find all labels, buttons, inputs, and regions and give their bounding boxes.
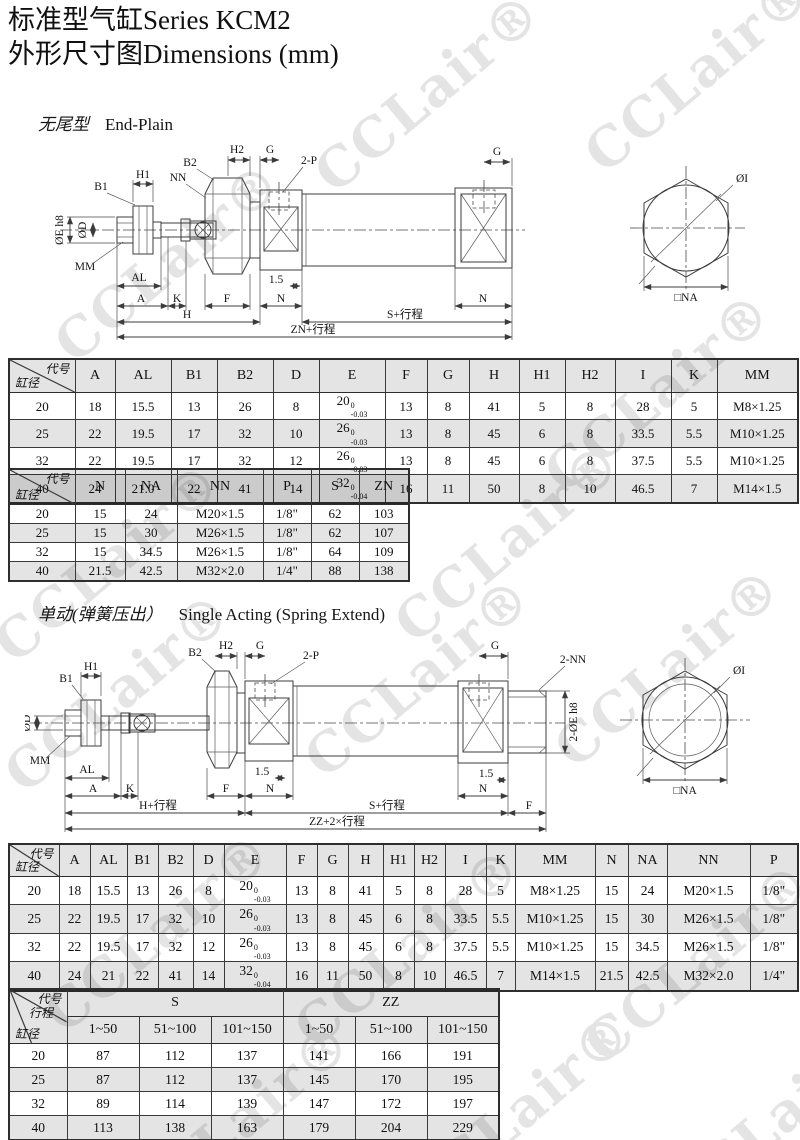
dim-label-f-right: F <box>526 800 532 812</box>
value-cell: 64 <box>311 543 359 562</box>
value-cell: 34.5 <box>628 933 667 961</box>
stroke-range-header: 1~50 <box>67 1017 139 1044</box>
section-heading-en: Single Acting (Spring Extend) <box>179 605 385 624</box>
value-cell: 10 <box>193 905 224 933</box>
value-cell: 32 <box>158 933 193 961</box>
dim-label-b2: B2 <box>183 157 197 169</box>
tolerance-base: 26 <box>239 935 253 950</box>
value-cell: 138 <box>139 1116 211 1140</box>
column-header: P <box>750 844 798 877</box>
value-cell: 137 <box>211 1044 283 1068</box>
column-header: N <box>75 469 125 505</box>
value-cell: 113 <box>67 1116 139 1140</box>
column-header: A <box>59 844 90 877</box>
value-cell: M8×1.25 <box>717 393 798 420</box>
dim-label-g-left: G <box>266 144 274 156</box>
dim-label-g-right: G <box>493 146 501 158</box>
corner-header: 代号 缸径 <box>9 359 75 393</box>
value-cell: 147 <box>283 1092 355 1116</box>
bore-cell: 20 <box>9 505 75 524</box>
value-cell: 33.5 <box>445 905 486 933</box>
table-row: 40113138163179204229 <box>9 1116 499 1140</box>
dim-label-2p: 2-P <box>301 155 317 167</box>
header-row: 代号 缸径 A AL B1 B2 D E F G H H1 H2 I K MM … <box>9 844 798 877</box>
tolerance-stack: 0-0.04 <box>254 971 271 989</box>
value-cell: 42.5 <box>125 562 177 582</box>
value-cell: 19.5 <box>115 420 171 447</box>
tolerance-stack: 0-0.03 <box>254 943 271 961</box>
dim-label-2p: 2-P <box>303 650 319 662</box>
column-header: MM <box>717 359 798 393</box>
value-cell: 22 <box>127 962 158 991</box>
value-cell: M26×1.5 <box>177 524 263 543</box>
value-cell: 8 <box>383 962 414 991</box>
value-cell: 138 <box>359 562 409 582</box>
value-cell: 8 <box>565 393 615 420</box>
dim-label-a: A <box>89 783 98 795</box>
dim-label-h1: H1 <box>84 661 98 673</box>
column-header: H1 <box>519 359 565 393</box>
table-row: 201815.513268200-0.031384158285M8×1.25 <box>9 393 798 420</box>
value-cell: M10×1.25 <box>717 420 798 447</box>
dim-label-oe: ØE h8 <box>55 215 66 245</box>
value-cell: 28 <box>615 393 671 420</box>
table-row: 4021.542.5M32×2.01/4"88138 <box>9 562 409 582</box>
column-header: AL <box>115 359 171 393</box>
column-header: H <box>348 844 383 877</box>
dim-label-n-left: N <box>266 783 275 795</box>
column-header: D <box>273 359 319 393</box>
value-cell: M10×1.25 <box>515 905 595 933</box>
value-cell: 8 <box>317 905 348 933</box>
dim-label-od: ØD <box>25 715 33 732</box>
value-cell: 5.5 <box>671 447 717 474</box>
value-cell: 19.5 <box>90 905 127 933</box>
value-cell: 5 <box>486 877 515 905</box>
value-cell: 26 <box>217 393 273 420</box>
value-cell: 45 <box>348 905 383 933</box>
dim-label-f-left: F <box>223 783 229 795</box>
value-cell: 12 <box>193 933 224 961</box>
dim-label-oi: ØI <box>736 173 748 185</box>
value-cell: 89 <box>67 1092 139 1116</box>
corner-label-code: 代号 <box>45 473 69 485</box>
value-cell: 18 <box>59 877 90 905</box>
value-cell: 18 <box>75 393 115 420</box>
dim-label-h2: H2 <box>219 640 233 652</box>
column-header: I <box>615 359 671 393</box>
dim-label-al: AL <box>79 764 94 776</box>
dim-label-f: F <box>224 293 230 305</box>
section-heading-cn: 单动(弹簧压出） <box>38 605 163 624</box>
value-cell: 107 <box>359 524 409 543</box>
value-cell: 5.5 <box>671 420 717 447</box>
table-row: 322219.5173212260-0.03138456837.55.5M10×… <box>9 933 798 961</box>
value-cell: M26×1.5 <box>667 933 750 961</box>
bore-cell: 25 <box>9 524 75 543</box>
value-cell: 24 <box>125 505 177 524</box>
bore-cell: 32 <box>9 1092 67 1116</box>
column-header: NN <box>667 844 750 877</box>
value-cell: 8 <box>565 420 615 447</box>
value-cell: 8 <box>273 393 319 420</box>
value-cell: 114 <box>139 1092 211 1116</box>
dim-label-2nn: 2-NN <box>560 654 587 666</box>
value-cell: 109 <box>359 543 409 562</box>
stroke-range-header: 51~100 <box>355 1017 427 1044</box>
value-cell: 34.5 <box>125 543 177 562</box>
column-header: D <box>193 844 224 877</box>
tolerance-upper: 0 <box>254 971 271 980</box>
value-cell: 260-0.03 <box>224 933 286 961</box>
table-row: 3289114139147172197 <box>9 1092 499 1116</box>
value-cell: 13 <box>286 933 317 961</box>
value-cell: M10×1.25 <box>515 933 595 961</box>
value-cell: 22 <box>59 905 90 933</box>
corner-label-code: 代号 <box>37 993 61 1005</box>
value-cell: 13 <box>385 420 427 447</box>
value-cell: 103 <box>359 505 409 524</box>
tolerance-lower: -0.03 <box>254 952 271 961</box>
tolerance-lower: -0.03 <box>254 924 271 933</box>
value-cell: 30 <box>628 905 667 933</box>
table-row: 252219.5173210260-0.03138456833.55.5M10×… <box>9 420 798 447</box>
dim-label-zn-stroke: ZN+行程 <box>291 323 336 336</box>
corner-label-bore: 缸径 <box>15 489 39 501</box>
tolerance-base: 20 <box>239 878 253 893</box>
corner-label-stroke: 行程 <box>29 1007 53 1019</box>
value-cell: M14×1.5 <box>515 962 595 991</box>
value-cell: 8 <box>565 447 615 474</box>
dim-label-g-left: G <box>256 640 264 652</box>
value-cell: 42.5 <box>628 962 667 991</box>
watermark: CCLair® <box>652 1004 800 1140</box>
table-row: 252219.5173210260-0.03138456833.55.5M10×… <box>9 905 798 933</box>
value-cell: 1/8" <box>750 933 798 961</box>
tolerance-lower: -0.03 <box>351 438 368 447</box>
value-cell: 41 <box>348 877 383 905</box>
value-cell: 13 <box>171 393 217 420</box>
column-header: G <box>317 844 348 877</box>
hex-end-view: ØI □NA <box>637 665 745 797</box>
bore-cell: 40 <box>9 562 75 582</box>
dim-label-n-left: N <box>277 293 286 305</box>
corner-header: 代号 行程 缸径 <box>9 989 67 1044</box>
column-header: S <box>311 469 359 505</box>
table-row: 2087112137141166191 <box>9 1044 499 1068</box>
section-heading-single-acting: 单动(弹簧压出）Single Acting (Spring Extend) <box>38 600 385 625</box>
value-cell: 1/8" <box>263 543 311 562</box>
value-cell: 87 <box>67 1068 139 1092</box>
column-header: H2 <box>414 844 445 877</box>
value-cell: 6 <box>383 933 414 961</box>
column-header: K <box>486 844 515 877</box>
page-title-line2: 外形尺寸图Dimensions (mm) <box>8 38 339 72</box>
tolerance-lower: -0.03 <box>254 895 271 904</box>
value-cell: 14 <box>193 962 224 991</box>
value-cell: 112 <box>139 1068 211 1092</box>
value-cell: 260-0.03 <box>319 420 385 447</box>
dim-label-h2: H2 <box>230 144 244 156</box>
bore-cell: 25 <box>9 1068 67 1092</box>
value-cell: 45 <box>348 933 383 961</box>
value-cell: 17 <box>171 420 217 447</box>
column-header: F <box>286 844 317 877</box>
value-cell: 145 <box>283 1068 355 1092</box>
value-cell: 15 <box>75 543 125 562</box>
group-header-s: S <box>67 989 283 1017</box>
bore-cell: 32 <box>9 543 75 562</box>
value-cell: 15 <box>595 905 628 933</box>
value-cell: 170 <box>355 1068 427 1092</box>
value-cell: 8 <box>193 877 224 905</box>
value-cell: 11 <box>427 475 469 503</box>
column-header: A <box>75 359 115 393</box>
column-header: NN <box>177 469 263 505</box>
tolerance-upper: 0 <box>254 943 271 952</box>
page-title: 标准型气缸Series KCM2 外形尺寸图Dimensions (mm) <box>8 4 339 72</box>
dim-label-od: ØD <box>77 222 89 239</box>
value-cell: 191 <box>427 1044 499 1068</box>
corner-label-bore: 缸径 <box>15 1028 39 1040</box>
value-cell: 8 <box>317 877 348 905</box>
value-cell: 24 <box>628 877 667 905</box>
corner-header: 代号 缸径 <box>9 844 59 877</box>
dim-label-gap: 1.5 <box>269 274 284 286</box>
value-cell: 17 <box>127 933 158 961</box>
tolerance-base: 26 <box>337 420 350 435</box>
value-cell: 24 <box>59 962 90 991</box>
value-cell: 204 <box>355 1116 427 1140</box>
value-cell: 37.5 <box>445 933 486 961</box>
stroke-range-header: 101~150 <box>427 1017 499 1044</box>
column-header: F <box>385 359 427 393</box>
column-header: E <box>224 844 286 877</box>
bore-cell: 20 <box>9 877 59 905</box>
column-header: N <box>595 844 628 877</box>
tolerance-base: 32 <box>239 963 253 978</box>
bore-cell: 40 <box>9 962 59 991</box>
stroke-range-header: 101~150 <box>211 1017 283 1044</box>
value-cell: 7 <box>671 475 717 503</box>
value-cell: 200-0.03 <box>224 877 286 905</box>
value-cell: 41 <box>469 393 519 420</box>
value-cell: M14×1.5 <box>717 475 798 503</box>
column-header: K <box>671 359 717 393</box>
value-cell: 260-0.03 <box>224 905 286 933</box>
value-cell: M26×1.5 <box>177 543 263 562</box>
tolerance-stack: 0-0.03 <box>351 428 368 446</box>
value-cell: 5 <box>383 877 414 905</box>
dim-label-k: K <box>173 293 182 305</box>
corner-label-bore: 缸径 <box>15 377 39 389</box>
column-header: H <box>469 359 519 393</box>
dim-label-al: AL <box>131 272 146 284</box>
value-cell: 1/4" <box>263 562 311 582</box>
value-cell: 17 <box>127 905 158 933</box>
single-acting-dimension-table: 代号 缸径 A AL B1 B2 D E F G H H1 H2 I K MM … <box>8 843 799 992</box>
value-cell: 8 <box>519 475 565 503</box>
bore-cell: 20 <box>9 393 75 420</box>
tolerance-upper: 0 <box>351 456 368 465</box>
value-cell: 32 <box>158 905 193 933</box>
hex-end-view: ØI □NA <box>639 173 748 304</box>
catalog-page: CCLair® CCLair® CCLair® CCLair® CCLair® … <box>0 0 800 1140</box>
cylinder-side-view <box>117 178 512 274</box>
value-cell: 10 <box>565 475 615 503</box>
value-cell: 37.5 <box>615 447 671 474</box>
tolerance-upper: 0 <box>254 914 271 923</box>
value-cell: 5.5 <box>486 933 515 961</box>
value-cell: 22 <box>59 933 90 961</box>
value-cell: 1/4" <box>750 962 798 991</box>
value-cell: 6 <box>519 420 565 447</box>
value-cell: 1/8" <box>750 905 798 933</box>
dim-label-a: A <box>137 293 146 305</box>
column-header: I <box>445 844 486 877</box>
value-cell: 112 <box>139 1044 211 1068</box>
value-cell: 46.5 <box>445 962 486 991</box>
value-cell: 32 <box>217 420 273 447</box>
dim-label-zz-stroke: ZZ+2×行程 <box>309 815 365 828</box>
end-plain-dimension-drawing: H1 B1 NN B2 H2 G 2-P G ØE h8 ØD MM <box>55 138 800 350</box>
section-heading-end-plain: 无尾型End-Plain <box>38 110 173 135</box>
tolerance-base: 26 <box>337 448 350 463</box>
value-cell: 5.5 <box>486 905 515 933</box>
value-cell: 1/8" <box>263 524 311 543</box>
tolerance-base: 20 <box>337 393 350 408</box>
tolerance-upper: 0 <box>351 401 368 410</box>
value-cell: 141 <box>283 1044 355 1068</box>
column-header: H2 <box>565 359 615 393</box>
group-header-zz: ZZ <box>283 989 499 1017</box>
stroke-range-header: 51~100 <box>139 1017 211 1044</box>
value-cell: 8 <box>414 933 445 961</box>
value-cell: 33.5 <box>615 420 671 447</box>
value-cell: 5 <box>671 393 717 420</box>
header-row: 代号 缸径 A AL B1 B2 D E F G H H1 H2 I K MM <box>9 359 798 393</box>
value-cell: M32×2.0 <box>177 562 263 582</box>
section-heading-en: End-Plain <box>105 115 173 134</box>
dim-label-s-stroke: S+行程 <box>369 799 405 812</box>
value-cell: 137 <box>211 1068 283 1092</box>
value-cell: 13 <box>127 877 158 905</box>
header-row: 代号 行程 缸径 S ZZ <box>9 989 499 1017</box>
column-header: NA <box>125 469 177 505</box>
value-cell: 21 <box>90 962 127 991</box>
dim-label-gap-right: 1.5 <box>479 768 494 780</box>
value-cell: M8×1.25 <box>515 877 595 905</box>
value-cell: 172 <box>355 1092 427 1116</box>
tolerance-upper: 0 <box>254 886 271 895</box>
bore-cell: 25 <box>9 420 75 447</box>
value-cell: 45 <box>469 447 519 474</box>
value-cell: 200-0.03 <box>319 393 385 420</box>
value-cell: 26 <box>158 877 193 905</box>
dim-label-b1: B1 <box>59 673 73 685</box>
header-row: 代号 缸径 N NA NN P S ZN <box>9 469 409 505</box>
column-header: B2 <box>217 359 273 393</box>
dim-label-s-stroke: S+行程 <box>387 308 423 321</box>
value-cell: 15.5 <box>115 393 171 420</box>
dim-label-nn: NN <box>170 172 187 184</box>
dim-label-na: □NA <box>673 785 697 797</box>
tolerance-base: 26 <box>239 906 253 921</box>
bore-cell: 40 <box>9 1116 67 1140</box>
dim-label-n-right: N <box>479 293 488 305</box>
dim-label-h: H <box>183 309 191 321</box>
value-cell: 139 <box>211 1092 283 1116</box>
column-header: G <box>427 359 469 393</box>
dim-label-na: □NA <box>674 292 698 304</box>
value-cell: 13 <box>385 393 427 420</box>
corner-label-bore: 缸径 <box>15 861 39 873</box>
single-acting-dimension-drawing: H1 B1 B2 H2 G 2-P G 2-NN 2-ØE h8 ØD MM <box>25 636 800 840</box>
stroke-range-header: 1~50 <box>283 1017 355 1044</box>
value-cell: 229 <box>427 1116 499 1140</box>
value-cell: 1/8" <box>263 505 311 524</box>
value-cell: 15.5 <box>90 877 127 905</box>
column-header: P <box>263 469 311 505</box>
value-cell: 179 <box>283 1116 355 1140</box>
table-row: 201524M20×1.51/8"62103 <box>9 505 409 524</box>
value-cell: 62 <box>311 505 359 524</box>
value-cell: 87 <box>67 1044 139 1068</box>
corner-label-code: 代号 <box>29 848 53 860</box>
value-cell: 15 <box>75 524 125 543</box>
value-cell: 11 <box>317 962 348 991</box>
corner-label-code: 代号 <box>45 363 69 375</box>
value-cell: 15 <box>75 505 125 524</box>
value-cell: 19.5 <box>90 933 127 961</box>
value-cell: 50 <box>469 475 519 503</box>
value-cell: 163 <box>211 1116 283 1140</box>
dim-label-b2: B2 <box>188 647 202 659</box>
subheader-row: 1~50 51~100 101~150 1~50 51~100 101~150 <box>9 1017 499 1044</box>
tolerance-stack: 0-0.03 <box>254 886 271 904</box>
value-cell: 13 <box>286 877 317 905</box>
tolerance-stack: 0-0.03 <box>254 914 271 932</box>
value-cell: 21.5 <box>595 962 628 991</box>
end-plain-dimension-table-2: 代号 缸径 N NA NN P S ZN 201524M20×1.51/8"62… <box>8 468 410 582</box>
dim-label-n-right: N <box>479 783 488 795</box>
value-cell: 5 <box>519 393 565 420</box>
bore-cell: 32 <box>9 933 59 961</box>
table-row: 2587112137145170195 <box>9 1068 499 1092</box>
value-cell: 166 <box>355 1044 427 1068</box>
tolerance-stack: 0-0.03 <box>351 401 368 419</box>
value-cell: 45 <box>469 420 519 447</box>
value-cell: 8 <box>414 905 445 933</box>
corner-header: 代号 缸径 <box>9 469 75 505</box>
value-cell: 21.5 <box>75 562 125 582</box>
value-cell: 8 <box>317 933 348 961</box>
value-cell: 6 <box>519 447 565 474</box>
value-cell: 13 <box>286 905 317 933</box>
value-cell: 8 <box>427 447 469 474</box>
dim-label-h-stroke: H+行程 <box>139 799 177 812</box>
column-header: AL <box>90 844 127 877</box>
value-cell: 8 <box>427 393 469 420</box>
cylinder-side-view <box>65 671 546 768</box>
value-cell: 10 <box>414 962 445 991</box>
value-cell: 10 <box>273 420 319 447</box>
value-cell: 195 <box>427 1068 499 1092</box>
value-cell: 50 <box>348 962 383 991</box>
column-header: E <box>319 359 385 393</box>
column-header: ZN <box>359 469 409 505</box>
stroke-table: 代号 行程 缸径 S ZZ 1~50 51~100 101~150 1~50 5… <box>8 988 500 1140</box>
